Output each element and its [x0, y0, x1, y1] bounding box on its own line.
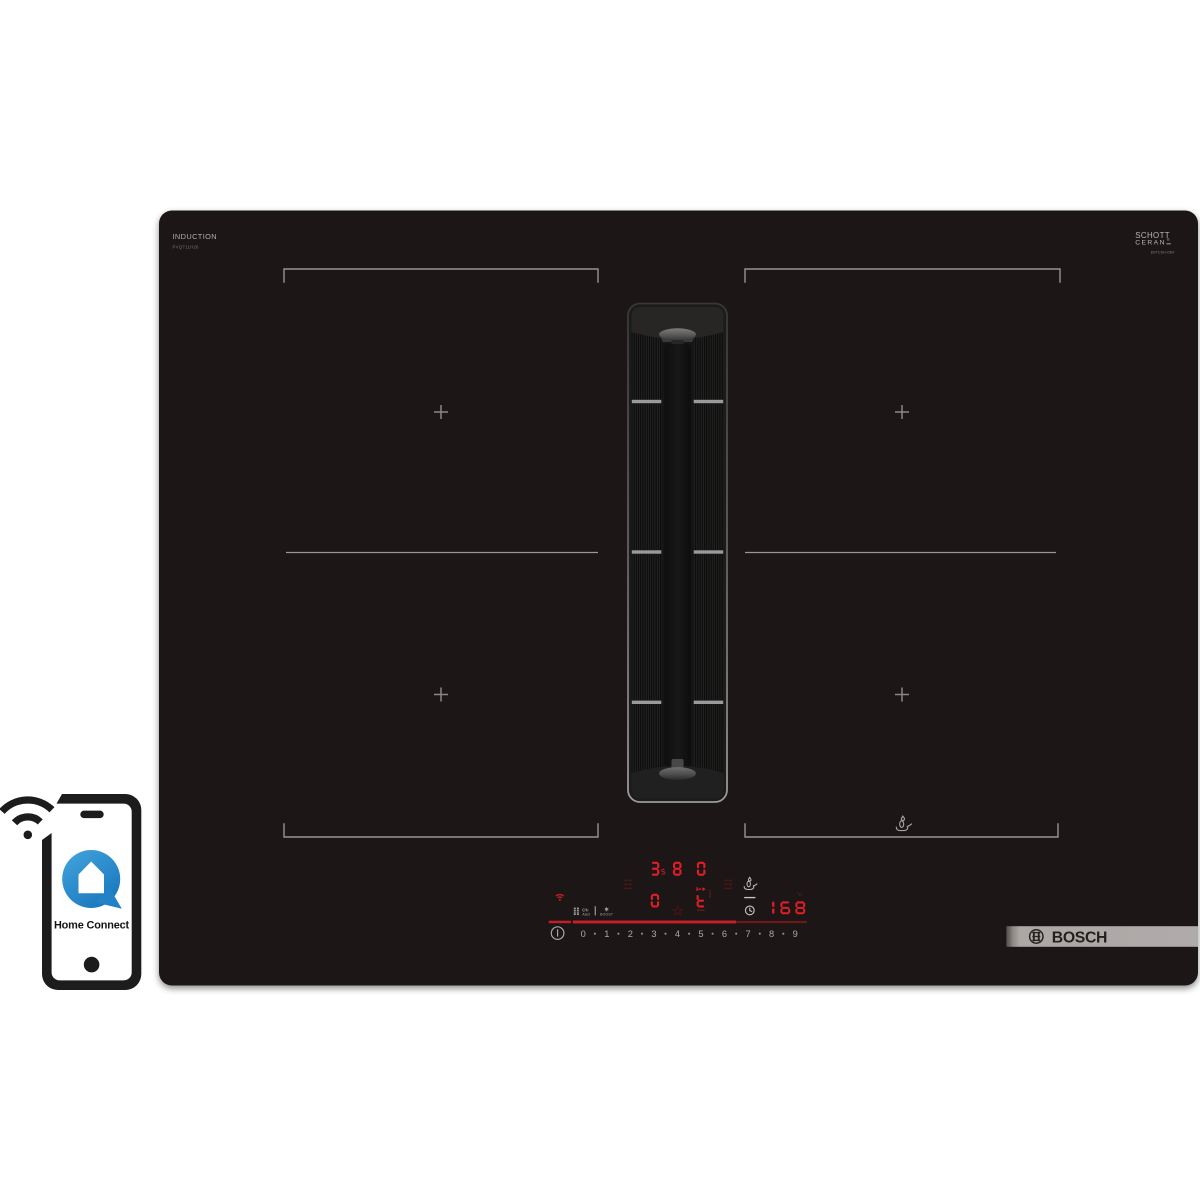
svg-text:4: 4 — [675, 929, 680, 939]
svg-text:3: 3 — [651, 929, 656, 939]
svg-text:8: 8 — [769, 929, 774, 939]
svg-text:BOOST: BOOST — [600, 912, 613, 916]
svg-text:9: 9 — [793, 929, 798, 939]
svg-text:0: 0 — [581, 929, 586, 939]
svg-text:®: ® — [1167, 238, 1170, 242]
svg-text:BOSCH: BOSCH — [1052, 929, 1107, 946]
svg-text:7: 7 — [746, 929, 751, 939]
svg-text:CERAN: CERAN — [1135, 239, 1166, 246]
svg-text:PVQ711H26: PVQ711H26 — [173, 244, 200, 249]
svg-text:Asist: Asist — [582, 913, 590, 917]
svg-text:INDUCTION: INDUCTION — [173, 232, 217, 241]
svg-text:5: 5 — [698, 929, 703, 939]
svg-text:Home Connect: Home Connect — [54, 920, 130, 932]
svg-text:8OTCSH-O64: 8OTCSH-O64 — [1151, 251, 1174, 255]
svg-text:6: 6 — [722, 929, 727, 939]
svg-text:°C: °C — [797, 892, 803, 898]
svg-text:2: 2 — [628, 929, 633, 939]
svg-text:1: 1 — [604, 929, 609, 939]
